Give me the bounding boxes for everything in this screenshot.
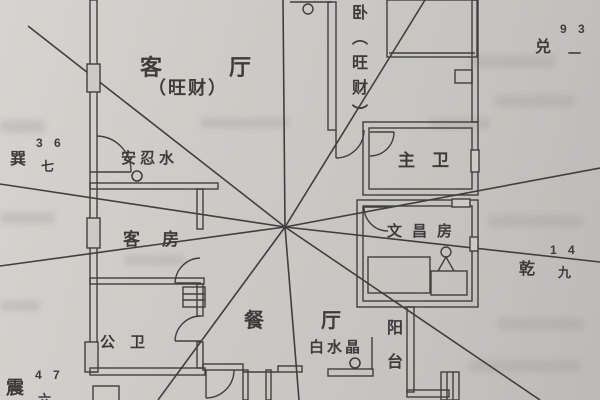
wenchang-window-right [470,237,478,251]
direction-zhen-star: 六 [38,389,51,400]
wall-post-2 [266,370,271,400]
bedroom-label: 卧（旺财） [345,4,369,129]
wall-post-1 [243,370,248,400]
direction-xun-numbers: 3 6 [36,136,65,150]
baishuijing-symbol [350,358,360,368]
dining-room-label: 餐厅 [244,304,398,333]
balcony-window-hatch [441,372,459,400]
living-room-note: （旺财） [148,74,228,100]
balcony-label: 阳台 [380,319,404,387]
bedroom-door-arc [336,130,364,158]
direction-dui-numbers: 9 3 [560,22,589,36]
direction-zhen-numbers: 4 7 [35,368,64,382]
direction-qian-label: 乾 [519,255,535,279]
baishuijing-label: 白水晶 [309,336,363,357]
master-bath-label: 主卫 [398,146,466,171]
guest-door-arc [175,258,200,283]
shelf-symbol [183,287,205,307]
wall-kitchen-top-2 [278,366,302,372]
wall-balcony-bottom [407,390,449,397]
wall-left-outer [90,0,97,372]
direction-dui-star: 一 [568,43,581,62]
crystal-bench [328,369,373,376]
direction-xun-label: 巽 [10,145,26,169]
bedroom-window [455,70,472,83]
public-bath-label: 公卫 [100,331,160,352]
wenchang-room-label: 文昌房 [387,220,462,241]
window-left-1 [87,64,100,92]
bed-outline [387,0,477,57]
direction-xun-star: 七 [41,156,54,175]
guest-room-label: 客房 [123,225,201,250]
wall-guest-top [90,183,218,189]
direction-qian-star: 九 [558,262,571,281]
masterbath-window [471,150,479,172]
masterbath-door-arc [370,132,394,156]
chair-outline [431,271,467,295]
direction-zhen-label: 震 [6,374,24,400]
wenchang-window-top [452,199,470,207]
wall-wenchang-outer [357,200,478,307]
entry-knob-symbol [303,4,313,14]
appliance-box [93,386,119,400]
anrenshui-symbol [132,171,142,181]
person-symbol-body [438,257,454,271]
desk-outline [368,257,430,293]
wall-balcony-right [407,307,414,392]
wall-kitchen-top [203,364,243,370]
window-left-2 [87,218,100,248]
floor-plan-scan: 客厅 （旺财） 卧（旺财） 主卫 文昌房 客房 餐厅 公卫 阳台 安忍水 白水晶… [0,0,600,400]
anrenshui-label: 安忍水 [121,147,178,168]
direction-qian-numbers: 1 4 [550,243,579,257]
person-symbol-head [441,247,451,257]
kitchen-door-arc [206,370,234,398]
wall-guest-right [197,189,203,229]
wall-bottom-left [90,368,205,375]
publicbath-door-arc [175,316,200,341]
wall-bedroom-left [328,2,336,130]
direction-dui-label: 兑 [535,33,551,57]
